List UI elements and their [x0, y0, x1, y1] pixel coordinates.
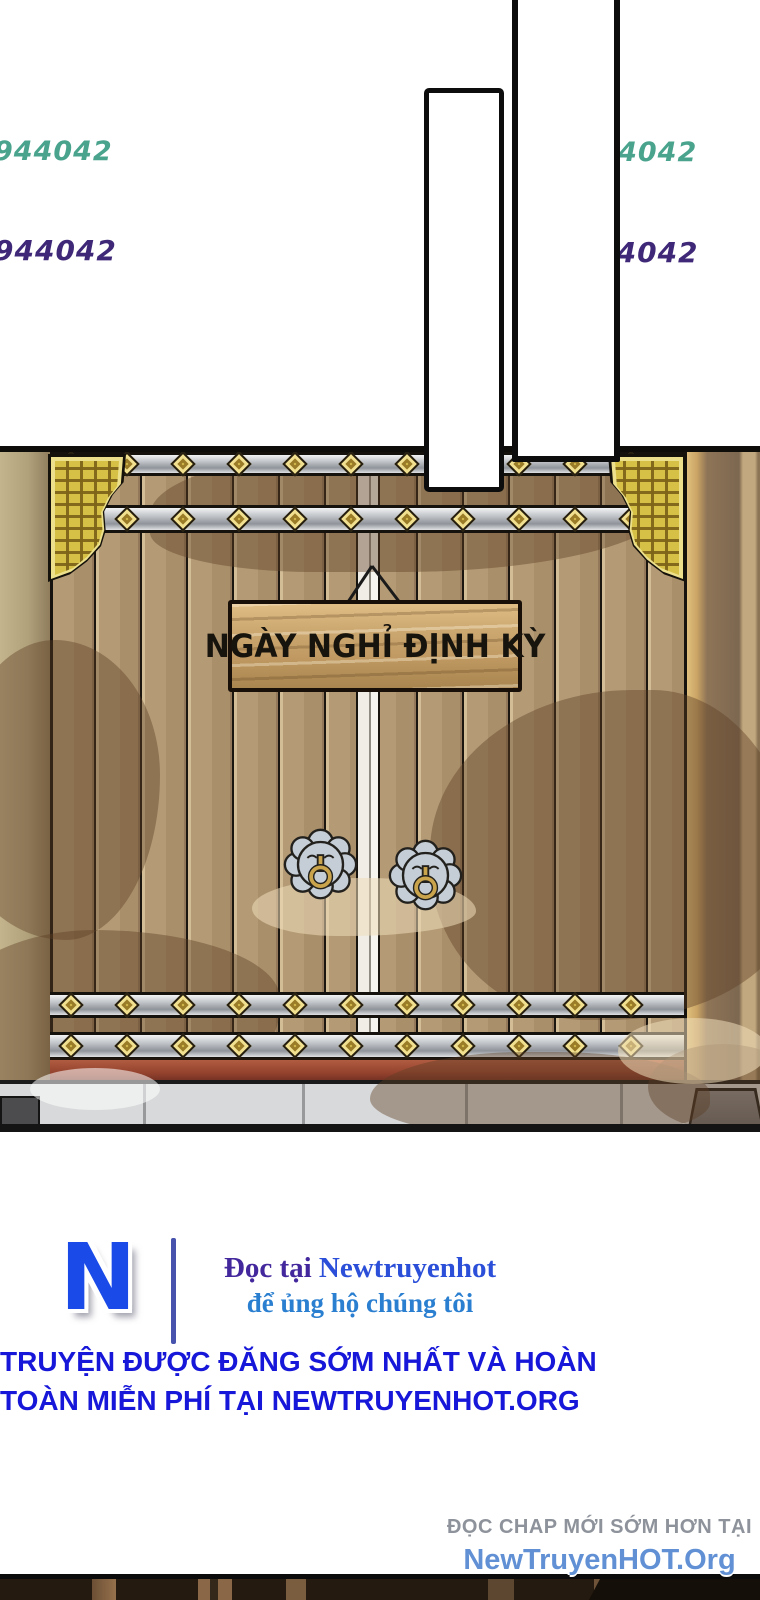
speech-bubble-1	[424, 88, 504, 492]
diamond-stud-icon	[394, 452, 419, 477]
diamond-stud-icon	[58, 992, 83, 1017]
diamond-stud-icon	[282, 506, 307, 531]
speech-bubble-2	[512, 0, 620, 462]
stone-bottom-edge	[0, 1124, 760, 1132]
diamond-stud-icon	[506, 992, 531, 1017]
promo-line2: TOÀN MIỄN PHÍ TẠI NEWTRUYENHOT.ORG	[0, 1381, 545, 1420]
diamond-stud-icon	[170, 1033, 195, 1058]
diamond-stud-icon	[506, 506, 531, 531]
wood-post	[286, 1579, 306, 1600]
diamond-stud-icon	[338, 506, 363, 531]
sign-board: NGÀY NGHỈ ĐỊNH KỲ	[228, 600, 522, 692]
diamond-stud-icon	[114, 1033, 139, 1058]
wood-post	[92, 1579, 116, 1600]
support-prefix: Đọc tại	[224, 1252, 319, 1284]
diamond-stud-icon	[226, 1033, 251, 1058]
stone-joint	[302, 1084, 305, 1128]
watermark-left-top: 944042	[0, 136, 113, 167]
light-mist-blob	[30, 1068, 160, 1110]
bottom-panel-sliver	[0, 1574, 760, 1600]
diamond-stud-icon	[170, 506, 195, 531]
logo-divider	[171, 1238, 176, 1344]
diamond-stud-icon	[394, 992, 419, 1017]
diamond-stud-icon	[394, 506, 419, 531]
wood-post	[488, 1579, 514, 1600]
diamond-stud-icon	[450, 506, 475, 531]
read-early-label: ĐỌC CHAP MỚI SỚM HƠN TẠI	[427, 1516, 760, 1539]
promo-text-block: TRUYỆN ĐƯỢC ĐĂNG SỚM NHẤT VÀ HOÀN TOÀN M…	[0, 1342, 545, 1420]
light-mist-blob	[618, 1018, 760, 1084]
read-early-block: ĐỌC CHAP MỚI SỚM HƠN TẠI NewTruyenHOT.Or…	[427, 1516, 760, 1577]
door-knocker-right-icon	[388, 838, 463, 913]
corner-bracket-right-icon	[608, 454, 686, 582]
gate-panel: NGÀY NGHỈ ĐỊNH KỲ	[0, 452, 760, 1132]
corner-bracket-left-icon	[48, 454, 126, 582]
gate-top-edge	[0, 446, 760, 452]
diamond-stud-icon	[170, 452, 195, 477]
diamond-stud-icon	[450, 992, 475, 1017]
diamond-stud-icon	[58, 1033, 83, 1058]
wood-post	[198, 1579, 232, 1600]
diamond-stud-icon	[114, 992, 139, 1017]
diamond-stud-icon	[282, 992, 307, 1017]
support-text-line2: để ủng hộ chúng tôi	[190, 1288, 530, 1319]
watermark-left-bottom: 944042	[0, 234, 117, 267]
diamond-stud-icon	[562, 506, 587, 531]
site-name: NewTruyenHOT.Org	[427, 1544, 760, 1577]
diamond-stud-icon	[394, 1033, 419, 1058]
metal-band-lower	[50, 992, 684, 1018]
diamond-stud-icon	[282, 1033, 307, 1058]
diamond-stud-icon	[338, 1033, 363, 1058]
diamond-stud-icon	[226, 452, 251, 477]
promo-line1: TRUYỆN ĐƯỢC ĐĂNG SỚM NHẤT VÀ HOÀN	[0, 1342, 545, 1381]
roof-plank-shadow	[586, 1579, 760, 1600]
comic-page: 944042 944042 vt944042 vt944042	[0, 0, 760, 1600]
support-text-line1: Đọc tại Newtruyenhot	[190, 1252, 530, 1285]
diamond-stud-icon	[562, 992, 587, 1017]
newtruyenhot-logo: N	[46, 1228, 150, 1332]
diamond-stud-icon	[282, 452, 307, 477]
metal-band-upper	[50, 505, 684, 533]
door-knocker-left-icon	[283, 827, 358, 902]
diamond-stud-icon	[226, 506, 251, 531]
diamond-stud-icon	[338, 992, 363, 1017]
sign-text: NGÀY NGHỈ ĐỊNH KỲ	[205, 627, 546, 665]
diamond-stud-icon	[170, 992, 195, 1017]
support-text-block: Đọc tại Newtruyenhot để ủng hộ chúng tôi	[190, 1252, 530, 1319]
diamond-stud-icon	[338, 452, 363, 477]
diamond-stud-icon	[226, 992, 251, 1017]
support-site-name: Newtruyenhot	[319, 1252, 496, 1284]
diamond-stud-icon	[618, 992, 643, 1017]
